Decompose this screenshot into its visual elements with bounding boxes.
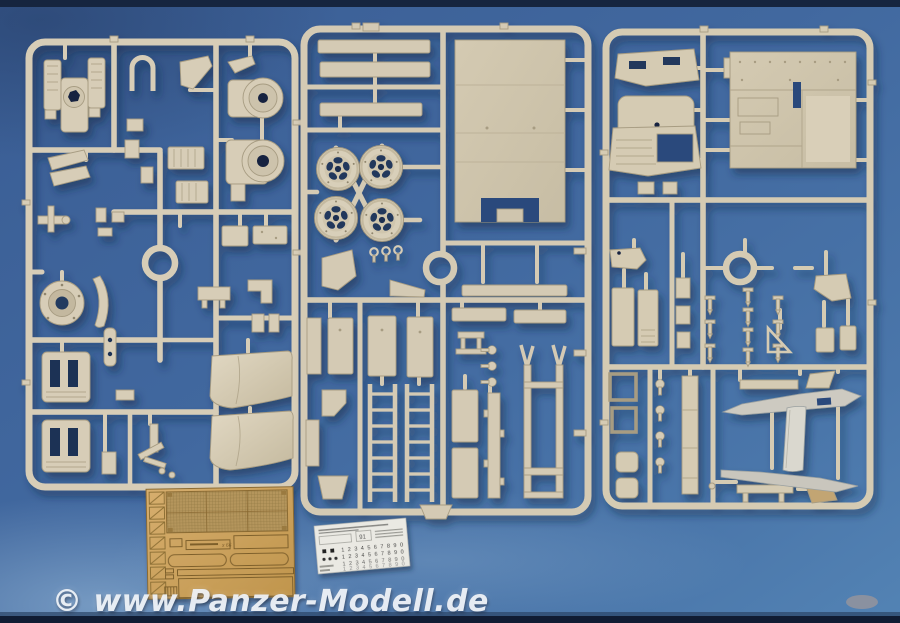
decal-box-label: 91 [359,535,367,542]
cab-side-assembly [724,52,856,168]
cab-visor-part [615,49,699,86]
wheel-part [315,197,358,240]
pe-mesh-screen [166,490,288,533]
photo-stage: x 66 91 1 2 3 4 5 6 7 8 9 0 1 2 3 4 5 6 … [0,0,900,623]
fender-panel-lower [210,411,293,470]
beam-part [318,40,430,53]
decal-sheet: 91 1 2 3 4 5 6 7 8 9 0 1 2 3 4 5 6 7 8 9… [314,518,410,575]
fender-panel-upper [210,351,292,408]
kit-sprues-photo: x 66 91 1 2 3 4 5 6 7 8 9 0 1 2 3 4 5 6 … [0,0,900,623]
beam-part [320,103,422,116]
dust-speck [846,595,878,609]
pe-fret: x 66 [146,487,295,600]
wheel-part [360,146,403,189]
gearbox-housing-upper [228,78,283,118]
engine-block-upper [42,352,90,402]
pin-parts [481,346,496,387]
wheel-part [361,199,404,242]
pe-etched-label: x 66 [221,543,232,549]
brake-drum-part [40,281,84,325]
long-bar-part [462,285,567,296]
beam-part [320,62,430,77]
grille-panel [609,126,701,176]
engine-block-lower [42,420,90,472]
roof-panel [455,40,565,222]
wheel-part [317,148,360,191]
